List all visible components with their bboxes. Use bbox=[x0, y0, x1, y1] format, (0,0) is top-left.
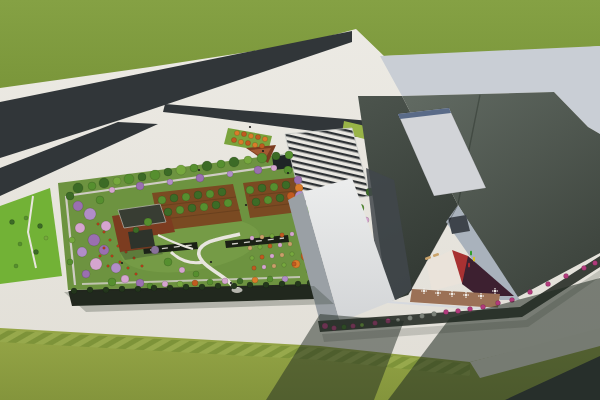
tree bbox=[182, 193, 190, 201]
tree bbox=[272, 264, 276, 268]
tree bbox=[190, 164, 198, 172]
tree bbox=[75, 223, 85, 233]
tree bbox=[109, 239, 112, 242]
tree bbox=[138, 173, 146, 181]
tree bbox=[282, 181, 290, 189]
tree bbox=[271, 165, 277, 171]
tree bbox=[247, 282, 253, 288]
tree bbox=[73, 201, 83, 211]
pavilion-roof-lower bbox=[128, 229, 155, 249]
tree bbox=[177, 281, 183, 287]
tree bbox=[218, 188, 226, 196]
tree bbox=[270, 254, 274, 258]
tree bbox=[432, 312, 437, 317]
architectural-rendering bbox=[0, 0, 600, 400]
tree bbox=[250, 236, 254, 240]
tree bbox=[278, 243, 282, 247]
tree bbox=[264, 196, 272, 204]
tree bbox=[73, 183, 83, 193]
tree bbox=[136, 182, 144, 190]
tree bbox=[99, 255, 102, 258]
tree bbox=[408, 316, 413, 321]
tree bbox=[96, 196, 104, 204]
tree bbox=[101, 221, 111, 231]
tree bbox=[108, 278, 116, 286]
tree bbox=[121, 275, 129, 283]
person-dot bbox=[198, 169, 200, 171]
tree bbox=[196, 174, 204, 182]
tree bbox=[167, 179, 173, 185]
tree bbox=[207, 279, 213, 285]
tree bbox=[248, 246, 252, 250]
tree bbox=[229, 157, 239, 167]
tree bbox=[111, 263, 121, 273]
tree bbox=[215, 283, 221, 289]
tree bbox=[244, 156, 252, 164]
tree bbox=[188, 204, 196, 212]
tree bbox=[272, 152, 280, 160]
tree bbox=[257, 153, 267, 163]
tree bbox=[90, 258, 102, 270]
tree bbox=[259, 143, 264, 148]
tree bbox=[176, 165, 186, 175]
tree bbox=[246, 186, 254, 194]
rendering-viewport bbox=[0, 0, 600, 400]
person-dot bbox=[245, 204, 247, 206]
tree bbox=[227, 171, 233, 177]
person-figure bbox=[470, 251, 472, 256]
tree bbox=[202, 161, 212, 171]
tree bbox=[270, 234, 274, 238]
tree bbox=[263, 282, 269, 288]
tree bbox=[280, 253, 284, 257]
tree bbox=[109, 187, 115, 193]
tree bbox=[150, 170, 160, 180]
tree bbox=[222, 278, 228, 284]
tree bbox=[295, 281, 301, 287]
person-dot bbox=[169, 246, 171, 248]
tree bbox=[164, 258, 172, 266]
tree bbox=[290, 232, 294, 236]
tree bbox=[282, 263, 286, 267]
tree bbox=[280, 233, 284, 237]
tree bbox=[456, 309, 461, 314]
tree bbox=[34, 250, 39, 255]
tree bbox=[294, 176, 302, 184]
tree bbox=[217, 160, 225, 168]
tree bbox=[14, 264, 18, 268]
tree bbox=[250, 256, 254, 260]
tree bbox=[82, 270, 90, 278]
tree bbox=[258, 245, 262, 249]
tree bbox=[212, 201, 220, 209]
person-figure bbox=[473, 257, 475, 262]
tree bbox=[67, 259, 73, 265]
tree bbox=[84, 208, 96, 220]
tree bbox=[258, 184, 266, 192]
tree bbox=[582, 266, 587, 271]
tree bbox=[97, 223, 100, 226]
tree bbox=[270, 183, 278, 191]
tree bbox=[135, 273, 138, 276]
tree bbox=[164, 208, 172, 216]
tree bbox=[133, 227, 139, 233]
person-dot bbox=[249, 126, 251, 128]
tree bbox=[10, 220, 15, 225]
tree bbox=[248, 133, 253, 138]
tree bbox=[144, 218, 152, 226]
tree bbox=[285, 151, 293, 159]
tree bbox=[99, 178, 109, 188]
tree bbox=[241, 131, 246, 136]
tree bbox=[111, 255, 114, 258]
tree bbox=[252, 198, 260, 206]
tree bbox=[252, 142, 257, 147]
tree bbox=[117, 245, 120, 248]
tree bbox=[260, 255, 264, 259]
tree bbox=[288, 242, 292, 246]
tree bbox=[262, 136, 267, 141]
tree bbox=[267, 276, 273, 282]
tree bbox=[77, 247, 87, 257]
tree bbox=[176, 206, 184, 214]
tree bbox=[254, 166, 262, 174]
tree bbox=[262, 265, 266, 269]
tree bbox=[444, 310, 449, 315]
tree bbox=[237, 278, 243, 284]
tree bbox=[420, 314, 425, 319]
tree bbox=[268, 244, 272, 248]
tree bbox=[179, 267, 185, 273]
tree bbox=[164, 168, 172, 176]
person-dot bbox=[121, 262, 123, 264]
tree bbox=[252, 266, 256, 270]
tree bbox=[193, 271, 199, 277]
tree bbox=[200, 203, 208, 211]
person-dot bbox=[287, 172, 289, 174]
tree bbox=[18, 242, 22, 246]
tree bbox=[546, 282, 551, 287]
tree bbox=[234, 130, 239, 135]
person-dot bbox=[262, 150, 264, 152]
tree bbox=[124, 174, 134, 184]
person-dot bbox=[230, 282, 232, 284]
tree bbox=[252, 277, 258, 283]
tree bbox=[290, 252, 294, 256]
tree bbox=[194, 191, 202, 199]
tree bbox=[255, 134, 260, 139]
tree bbox=[170, 194, 178, 202]
tree bbox=[593, 261, 598, 266]
tree bbox=[88, 182, 96, 190]
tree bbox=[238, 139, 243, 144]
tree bbox=[279, 281, 285, 287]
tree bbox=[206, 190, 214, 198]
tree bbox=[24, 216, 28, 220]
tree bbox=[224, 199, 232, 207]
tree bbox=[528, 290, 533, 295]
tree bbox=[88, 234, 100, 246]
tree bbox=[66, 192, 74, 200]
tree bbox=[103, 231, 106, 234]
tree bbox=[38, 224, 43, 229]
tree bbox=[162, 281, 168, 287]
tree bbox=[260, 235, 264, 239]
person-dot bbox=[210, 261, 212, 263]
tree bbox=[292, 262, 296, 266]
tree bbox=[44, 236, 48, 240]
tree bbox=[103, 247, 106, 250]
tree bbox=[245, 140, 250, 145]
tree bbox=[468, 307, 473, 312]
tree bbox=[564, 274, 569, 279]
tree bbox=[113, 177, 121, 185]
person-figure bbox=[468, 263, 470, 268]
tree bbox=[158, 196, 166, 204]
tree bbox=[231, 137, 236, 142]
tree bbox=[192, 280, 198, 286]
tree bbox=[276, 194, 284, 202]
tree bbox=[107, 265, 110, 268]
tree bbox=[127, 267, 130, 270]
tree bbox=[69, 237, 75, 243]
tree bbox=[141, 265, 144, 268]
